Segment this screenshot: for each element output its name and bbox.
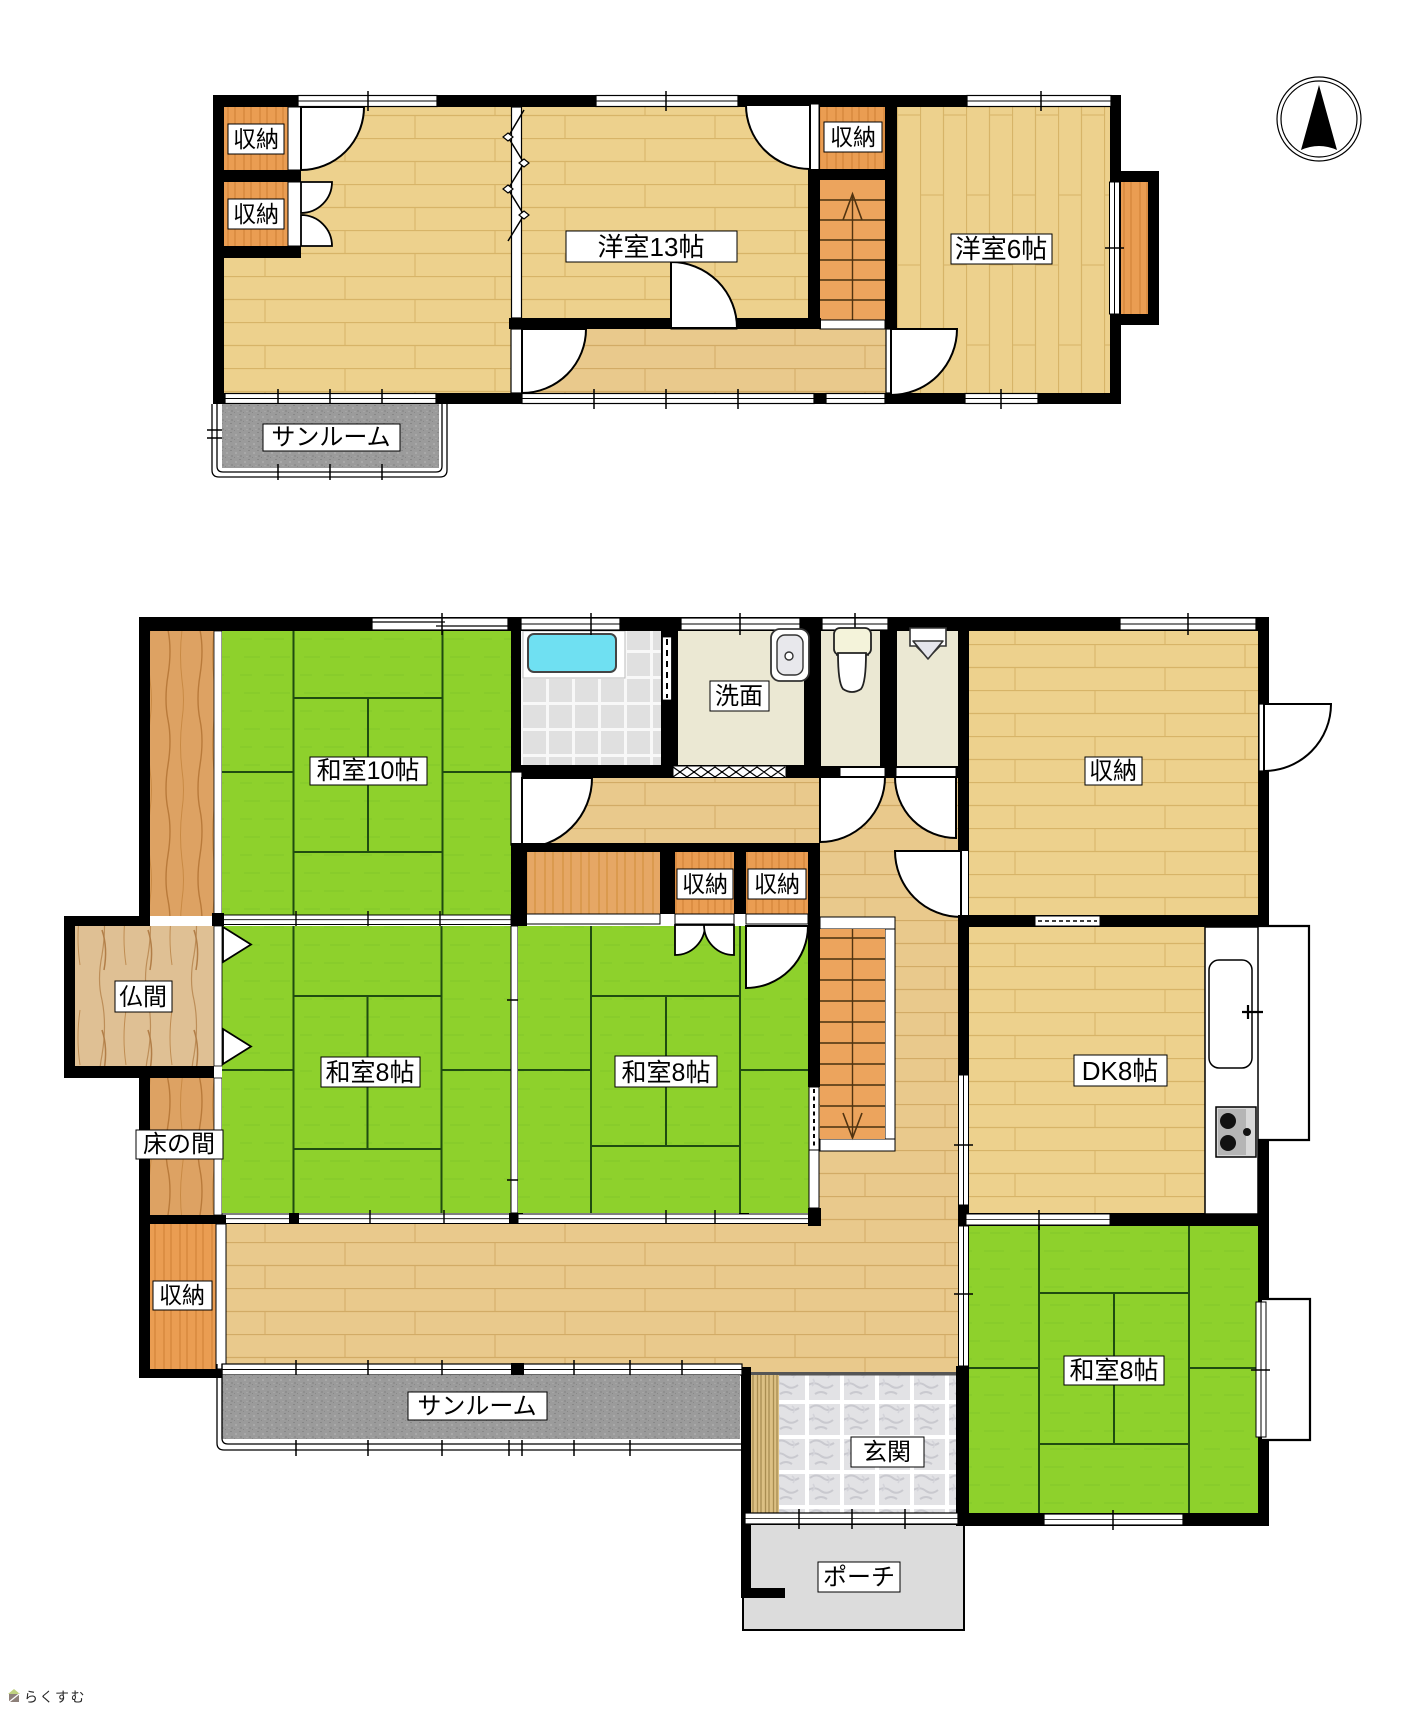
svg-text:仏間: 仏間 [119, 984, 167, 1011]
svg-text:収納: 収納 [754, 871, 800, 897]
svg-text:和室10帖: 和室10帖 [317, 757, 420, 785]
svg-text:収納: 収納 [233, 126, 279, 152]
svg-text:洋室13帖: 洋室13帖 [598, 232, 705, 262]
svg-text:サンルーム: サンルーム [417, 1393, 536, 1420]
svg-text:収納: 収納 [159, 1282, 205, 1308]
svg-text:床の間: 床の間 [143, 1131, 215, 1158]
svg-text:サンルーム: サンルーム [271, 424, 390, 451]
svg-text:洋室6帖: 洋室6帖 [955, 234, 1047, 264]
svg-text:ポーチ: ポーチ [823, 1564, 895, 1591]
svg-text:収納: 収納 [682, 871, 728, 897]
svg-text:和室8帖: 和室8帖 [326, 1059, 415, 1087]
svg-text:和室8帖: 和室8帖 [622, 1059, 711, 1087]
svg-text:収納: 収納 [830, 124, 876, 150]
svg-text:DK8帖: DK8帖 [1082, 1056, 1159, 1086]
svg-text:玄関: 玄関 [863, 1439, 911, 1466]
svg-text:和室8帖: 和室8帖 [1070, 1357, 1159, 1385]
svg-text:収納: 収納 [1089, 758, 1137, 785]
svg-text:収納: 収納 [233, 201, 279, 227]
svg-text:洗面: 洗面 [715, 683, 763, 710]
svg-text:らくすむ: らくすむ [24, 1689, 86, 1705]
